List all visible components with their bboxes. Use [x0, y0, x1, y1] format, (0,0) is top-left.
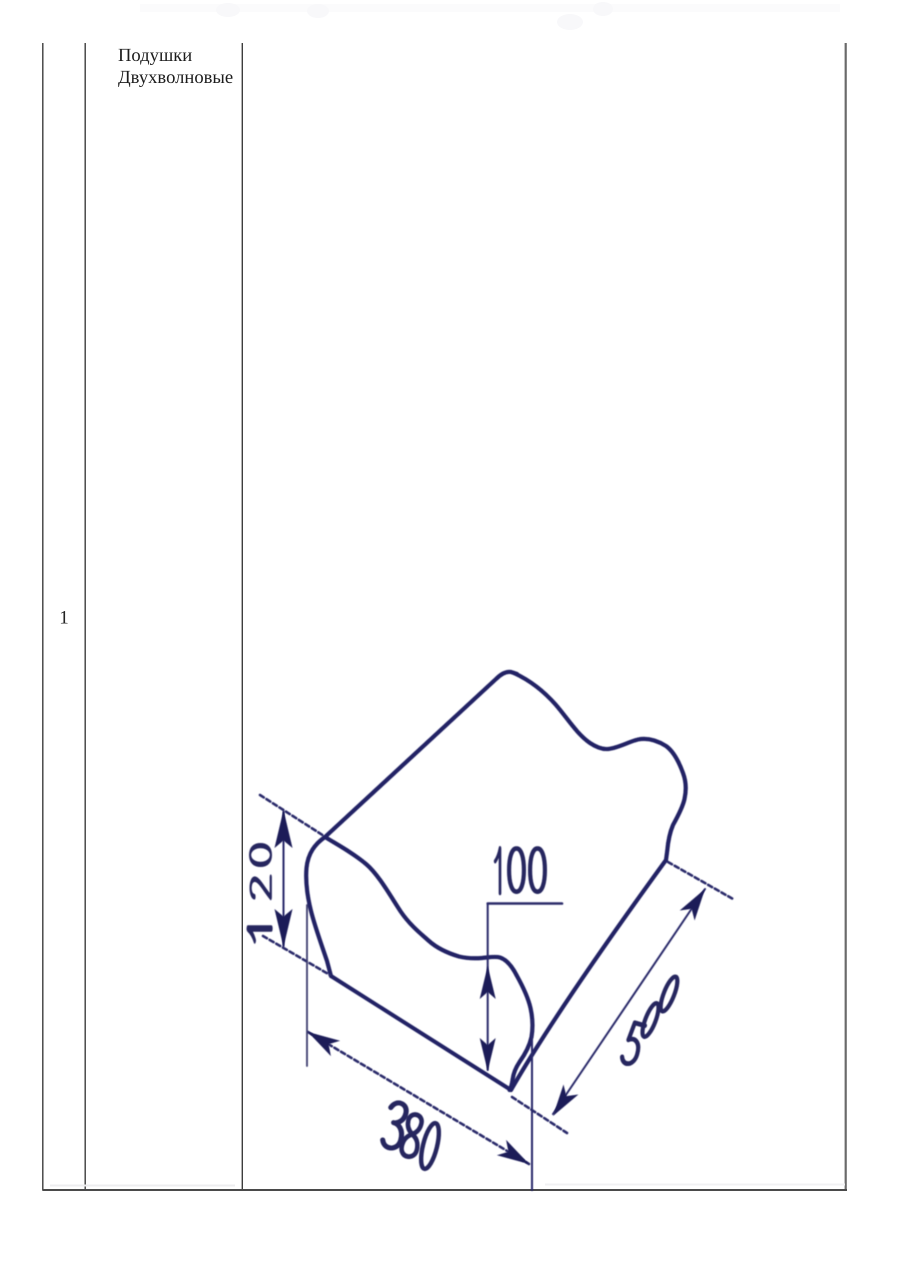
svg-text:1: 1	[59, 607, 69, 628]
svg-text:Подушки: Подушки	[118, 45, 192, 66]
svg-text:Двухволновые: Двухволновые	[118, 67, 233, 88]
